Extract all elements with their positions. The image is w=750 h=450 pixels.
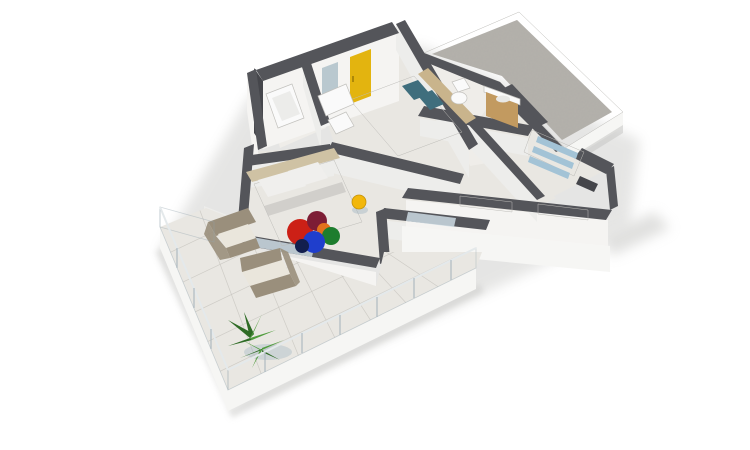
toilet-bowl [451,92,467,104]
floor-plan-render [0,0,750,450]
rug-circle-navy [295,239,309,253]
floor-plan-canvas [0,0,750,450]
vanity-basin [496,96,510,103]
yellow-stool [352,195,366,209]
